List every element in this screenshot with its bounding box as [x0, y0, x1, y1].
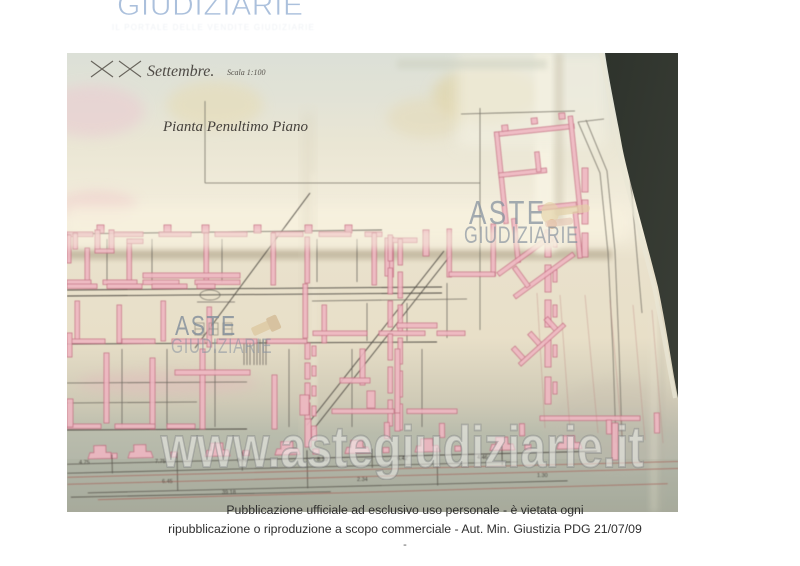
svg-text:Settembre.: Settembre.: [147, 63, 214, 80]
svg-text:Scala 1:100: Scala 1:100: [227, 68, 265, 77]
svg-text:Pianta Penultimo Piano: Pianta Penultimo Piano: [162, 119, 308, 135]
